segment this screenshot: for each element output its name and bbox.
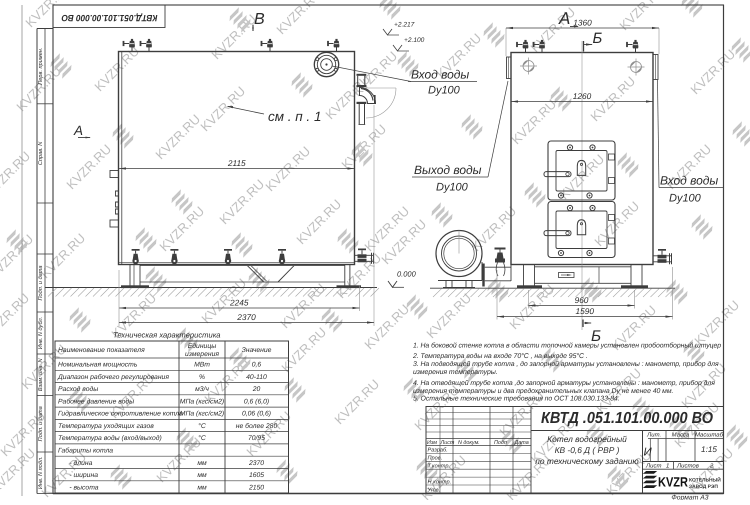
svg-text:Выход воды: Выход воды [414,163,482,177]
svg-text:мм: мм [197,472,207,479]
svg-text:2370: 2370 [236,312,256,322]
svg-text:Масса: Масса [672,432,690,439]
svg-text:2150: 2150 [248,484,264,491]
svg-text:0,06 (0,6): 0,06 (0,6) [242,411,271,418]
svg-text:измерения температуры.: измерения температуры. [413,369,498,376]
svg-text:ЗАВОД РЭП: ЗАВОД РЭП [689,484,718,490]
svg-text:1260: 1260 [573,91,592,101]
svg-text:1: 1 [666,462,669,469]
svg-text:КВ -0,6 Д ( РВР ): КВ -0,6 Д ( РВР ) [555,445,620,455]
svg-text:%: % [199,374,205,381]
svg-text:Расход воды: Расход воды [58,386,98,393]
svg-text:- высота: - высота [58,484,99,491]
svg-text:Взам. инв. N: Взам. инв. N [38,358,44,392]
svg-text:А: А [558,9,570,28]
svg-text:1605: 1605 [249,472,264,479]
svg-text:Справ. N: Справ. N [38,141,44,165]
svg-text:Лист: Лист [440,440,455,446]
svg-text:Наименование показателя: Наименование показателя [58,347,145,354]
svg-text:МПа (кгс/см2): МПа (кгс/см2) [180,411,224,418]
svg-text:Инв. N дубл.: Инв. N дубл. [37,317,44,349]
svg-text:КОТЕЛЬНЫЙ: КОТЕЛЬНЫЙ [689,477,721,484]
svg-text:Т.контр.: Т.контр. [428,464,451,470]
svg-text:2: 2 [709,462,714,469]
svg-text:Температура воды (вход/выход): Температура воды (вход/выход) [58,435,162,442]
svg-text:Dy100: Dy100 [669,193,702,205]
svg-text:0,6: 0,6 [252,362,262,369]
svg-text:КВТД.051.101.00.000 ВО: КВТД.051.101.00.000 ВО [62,13,158,23]
svg-text:м3/ч: м3/ч [195,386,209,393]
svg-text:Номинальная мощность: Номинальная мощность [58,362,138,369]
svg-text:Подп. и дата: Подп. и дата [37,265,44,300]
svg-text:Вход воды: Вход воды [411,68,469,82]
svg-text:Вход воды: Вход воды [660,174,718,188]
svg-text:не более 280: не более 280 [236,423,278,430]
svg-text:Диапазон рабочего регулировани: Диапазон рабочего регулирования [57,374,169,381]
svg-text:Подп. и дата: Подп. и дата [37,406,44,441]
svg-text:Утв.: Утв. [427,487,441,493]
svg-text:измерения: измерения [185,351,219,358]
svg-text:Изм: Изм [427,440,437,446]
svg-text:0.000: 0.000 [397,270,417,279]
svg-text:см . п . 1: см . п . 1 [268,109,321,124]
svg-text:Dy100: Dy100 [436,182,469,194]
svg-text:5. Остальные технические треб: 5. Остальные технические требования по О… [413,395,620,403]
svg-text:Б: Б [593,30,603,47]
svg-text:20: 20 [252,386,261,393]
svg-text:Лит.: Лит. [646,432,661,439]
svg-text:°С: °С [198,435,206,442]
svg-text:Значение: Значение [242,347,272,354]
svg-text:1:15: 1:15 [701,445,717,454]
svg-text:Масштаб: Масштаб [695,432,724,439]
svg-text:N докум.: N докум. [458,440,480,446]
svg-text:И: И [644,447,653,459]
svg-text:+2.217: +2.217 [394,22,415,29]
svg-text:Пров.: Пров. [428,456,443,462]
svg-text:В: В [254,11,265,28]
svg-text:Б: Б [591,328,601,345]
svg-text:Дата: Дата [514,440,529,446]
svg-text:Подп: Подп [494,440,507,446]
svg-text:Разраб.: Разраб. [428,447,448,454]
svg-text:4. На отводящей трубе котла ,: 4. На отводящей трубе котла ,до запорной… [413,379,715,387]
svg-text:Габариты котла: Габариты котла [58,447,113,454]
svg-text:- длина: - длина [58,460,93,467]
svg-text:960: 960 [575,295,589,305]
svg-text:Листов: Листов [676,462,699,469]
svg-text:2. Температура воды на входе: 2. Температура воды на входе 70°С , на в… [412,353,588,360]
svg-text:измерения температуры и два пр: измерения температуры и два предохраните… [413,388,674,395]
svg-text:Единицы: Единицы [188,343,216,350]
svg-text:Перв. примен.: Перв. примен. [38,48,44,85]
svg-text:KVZR: KVZR [658,475,688,490]
svg-text:Котел водогрейный: Котел водогрейный [547,434,627,444]
svg-text:0,6 (6,0): 0,6 (6,0) [244,398,269,405]
svg-text:Формат А3: Формат А3 [671,495,708,501]
svg-text:2115: 2115 [227,158,246,168]
svg-text:МВт: МВт [194,362,210,369]
svg-text:МПа (кгс/см2): МПа (кгс/см2) [180,398,224,405]
svg-text:мм: мм [197,460,207,467]
svg-text:КВТД .051.101.00.000 ВО: КВТД .051.101.00.000 ВО [541,410,713,427]
svg-text:Dy100: Dy100 [428,85,461,97]
svg-text:2370: 2370 [248,460,264,467]
svg-text:- ширина: - ширина [58,472,98,479]
svg-text:3. На подводящей трубе котла: 3. На подводящей трубе котла , до запорн… [413,360,719,368]
svg-text:70/95: 70/95 [248,435,265,442]
svg-text:Рабочее давление воды: Рабочее давление воды [58,398,134,405]
svg-text:2245: 2245 [229,298,249,308]
svg-text:А: А [73,123,83,138]
svg-text:по техническому заданию: по техническому заданию [535,456,639,466]
svg-text:мм: мм [197,484,207,491]
svg-text:Лист: Лист [645,462,661,469]
svg-text:1. На боковой стенке котла в: 1. На боковой стенке котла в области топ… [413,342,721,350]
svg-text:Гидравлическое сопротивление к: Гидравлическое сопротивление котла [58,411,183,418]
svg-text:40-110: 40-110 [246,374,267,381]
svg-text:+2.100: +2.100 [404,37,425,44]
svg-text:Инв. N подл.: Инв. N подл. [37,456,44,489]
svg-text:1590: 1590 [576,306,595,316]
svg-text:Техническая характеристика: Техническая характеристика [113,331,221,340]
svg-text:°С: °С [198,423,206,430]
svg-text:Н.контр.: Н.контр. [428,480,452,486]
svg-text:Температура уходящих газов: Температура уходящих газов [58,423,154,430]
